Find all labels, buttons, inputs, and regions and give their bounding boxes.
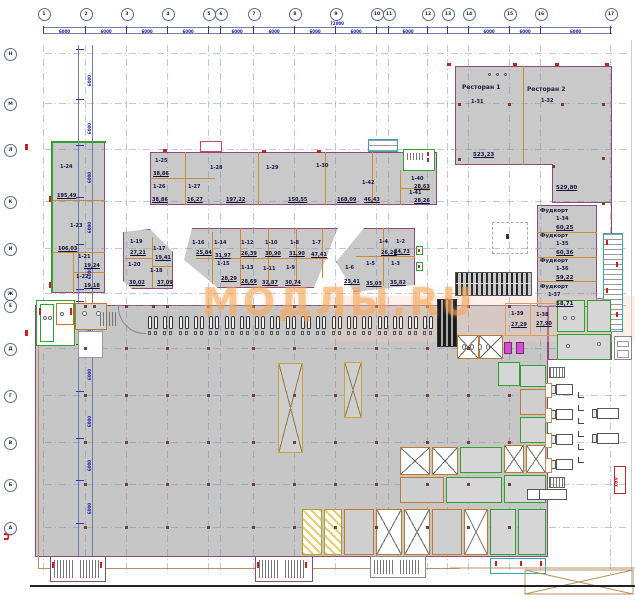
grid-bubble-top: 17 [605,8,618,21]
door-mark [616,312,618,317]
room-name-label: Фудкорт [540,258,568,264]
dim-tick [76,244,84,245]
checkout-base-icon [399,331,402,335]
column-marker [426,483,429,486]
back-of-house-room [302,509,322,555]
room-id-label: 1-16 [192,241,205,246]
dim-tick [76,480,84,481]
grid-bubble-top: 13 [442,8,455,21]
door-mark [418,249,420,252]
equipment-icon [563,316,567,320]
grid-bubble-top: 9 [330,8,343,21]
column-marker [84,347,87,350]
room-area-label: 37,09 [157,281,173,286]
column-marker [375,394,378,397]
grid-bubble-top: 15 [504,8,517,21]
travelator-ramp [278,363,303,453]
room-id-label: 1-17 [153,247,166,252]
grid-bubble-top: 10 [371,8,384,21]
partition [356,256,415,257]
partition [152,237,153,288]
dock-bracket [578,457,584,463]
column-marker [207,441,210,444]
checkout-base-icon [255,331,258,335]
back-of-house-room [432,447,458,475]
dim-total-label: 72000 [330,21,344,26]
column-marker [252,526,255,529]
checkout-base-icon [414,331,417,335]
room-area-label: 25,84 [196,251,212,256]
truck-trl [597,433,619,444]
dim-tick [76,438,84,439]
dim-segment-label: 6000 [87,502,92,513]
column-marker [561,103,564,106]
dim-tick [427,26,428,34]
room-area-label: 59,22 [556,275,573,281]
dim-segment-label: 6000 [403,29,414,34]
grid-line-horizontal [45,149,628,150]
room-name-label: Ресторан 2 [527,86,565,93]
room-id-label: 1-18 [150,269,163,274]
checkout-base-icon [423,331,426,335]
room-id-label: 1-3 [391,262,400,267]
column-marker [508,305,511,308]
column-marker [467,526,470,529]
sheet-frame [30,585,635,587]
dim-segment-label: 6000 [101,29,112,34]
dim-tick [294,26,295,34]
room-area-label: 47,41 [311,253,327,258]
dim-tick [335,26,336,34]
room-id-label: 1-38 [536,313,549,318]
door-mark [605,63,609,66]
grid-bubble-top: 16 [535,8,548,21]
grid-bubble-top: 4 [162,8,175,21]
column-marker [375,526,378,529]
checkout-base-icon [307,331,310,335]
column-marker [458,103,461,106]
room-name-label: Фудкорт [540,208,568,214]
door-mark [495,561,497,566]
checkout-base-icon [240,331,243,335]
room-id-label: 1-19 [130,240,143,245]
column-marker [84,441,87,444]
dim-segment-label: 6000 [351,29,362,34]
door-mark [39,308,41,315]
door-mark [100,562,102,568]
restaurant-inner-wall-h [455,164,553,165]
column-marker [508,441,511,444]
dim-segment-label: 6000 [269,29,280,34]
back-of-house-room [376,509,402,555]
checkout-desk-icon [194,316,198,329]
back-of-house-room [404,509,430,555]
grid-bubble-left: Ж [4,288,17,301]
dim-tick [208,26,209,34]
room-id-label: 1-41 [409,191,422,196]
room-id-label: 1-2 [396,240,405,245]
truck-trl [556,409,573,420]
grid-bubble-left: В [4,437,17,450]
dim-tick [76,523,84,524]
dim-segment-label: 6000 [87,75,92,86]
dim-tick [253,26,254,34]
dim-segment-label: 6000 [142,29,153,34]
column-marker [375,441,378,444]
column-marker [293,394,296,397]
dim-tick [76,197,84,198]
dim-segment-label: 6000 [484,29,495,34]
room-id-label: 1-11 [263,267,276,272]
column-marker [602,103,605,106]
partition [73,252,74,293]
checkout-base-icon [194,331,197,335]
dim-segment-label: 6000 [59,29,70,34]
grid-bubble-left: Л [4,144,17,157]
checkout-base-icon [154,331,157,335]
grid-bubble-top: 11 [383,8,396,21]
room-area-label: 38,86 [153,172,169,177]
cart-icon [82,311,87,316]
dim-tick [447,26,448,34]
checkout-base-icon [231,331,234,335]
room-id-label: 1-22 [76,275,89,280]
dim-tick [43,26,44,34]
room-area-label: 60,25 [556,225,573,231]
partition [523,66,524,165]
column-marker [93,305,96,308]
grid-bubble-left: Е [4,300,17,313]
room-area-label: 28,26 [414,199,430,204]
checkout-lane [162,310,174,337]
checkout-desk-icon [179,316,183,329]
door-mark [163,149,167,152]
checkout-base-icon [163,331,166,335]
room-area-label: 46,43 [364,198,380,203]
checkout-base-icon [286,331,289,335]
room-name-label: Фудкорт [540,284,568,290]
wc-fixture-icon [462,344,466,350]
dim-tick [76,289,84,290]
room-area-label: 168,09 [337,198,356,203]
door-mark [540,561,542,566]
room-id-label: 1-31 [471,100,484,105]
grid-bubble-top: 14 [463,8,476,21]
dim-segment-label: 6000 [570,29,581,34]
door-mark [447,63,451,66]
checkout-base-icon [209,331,212,335]
room-id-label: 1-36 [556,267,569,272]
column-marker [125,526,128,529]
room-id-label: 1-4 [379,240,388,245]
column-marker [426,347,429,350]
grid-bubble-left: Б [4,479,17,492]
room-id-label: 1-15 [217,262,230,267]
room-area-label: 27,21 [130,251,146,256]
column-marker [166,305,169,308]
back-of-house-room [587,300,611,332]
room-area-label: 19,18 [84,284,100,289]
wc-stall [516,342,524,354]
back-of-house-room [504,445,524,473]
room-area-label: 150,55 [288,198,307,203]
back-of-house-room [520,389,546,415]
back-of-house-room [557,334,611,360]
room-id-label: 1-10 [265,241,278,246]
column-marker [84,305,87,308]
door-mark [427,158,429,162]
room-id-label: 1-42 [362,181,375,186]
room-id-label: 1-14 [214,241,227,246]
approval-stamp-text: АВТ [612,477,617,487]
back-of-house-room [518,509,546,555]
column-marker [166,347,169,350]
dim-tick [76,99,84,100]
grid-bubble-top: 2 [80,8,93,21]
column-marker [426,394,429,397]
back-of-house-room [400,477,444,503]
door-mark [49,196,51,202]
column-marker [166,441,169,444]
door-mark [427,152,429,156]
door-mark [606,240,608,245]
column-marker [252,347,255,350]
checkout-base-icon [353,331,356,335]
dock-bracket [578,444,584,450]
room-area-label: 24,73 [394,250,410,255]
door-mark [513,63,517,66]
partition [268,228,269,286]
checkout-base-icon [270,331,273,335]
grid-bubble-top: 8 [289,8,302,21]
dock-bracket [578,431,584,437]
dim-segment-label: 6000 [232,29,243,34]
column-marker [334,483,337,486]
wc-stall [504,342,512,354]
room-id-label: 1-26 [153,185,166,190]
wc-fixture-icon [470,344,474,350]
column-marker [166,526,169,529]
column-marker [207,347,210,350]
checkout-base-icon [301,331,304,335]
grid-bubble-top: 12 [422,8,435,21]
room-area-label: 27,29 [511,323,527,328]
door-mark [257,562,259,568]
room-id-label: 1-27 [188,185,201,190]
checkout-base-icon [225,331,228,335]
column-marker [508,526,511,529]
facade-edge [51,141,53,293]
door-mark [52,562,54,568]
stair-run [54,560,74,578]
room-id-label: 1-8 [290,241,299,246]
back-of-house-room [490,509,516,555]
dock-door [545,458,552,473]
room-area-label: 19,41 [155,256,171,261]
checkout-base-icon [215,331,218,335]
room-id-label: 1-24 [60,165,73,170]
column-marker [125,347,128,350]
dim-tick [167,26,168,34]
dim-segment-label: 6000 [87,172,92,183]
column-marker [508,103,511,106]
partition [150,178,215,179]
column-marker [207,526,210,529]
column-marker [334,347,337,350]
dim-segment-label: 6000 [87,221,92,232]
checkout-base-icon [185,331,188,335]
room-id-label: 1-25 [155,159,168,164]
partition [240,228,241,286]
column-marker [166,483,169,486]
electrical-rack [407,153,425,160]
room-area-label: 106,03 [58,247,77,252]
zone-mark [506,234,509,239]
grid-bubble-left: И [4,243,17,256]
dock-grate [549,477,565,488]
room-area-label: 197,22 [226,198,245,203]
door-mark [25,144,28,150]
dock-door [545,408,552,423]
room-area-label: 529,80 [556,185,577,191]
truck-trailer-line [539,489,540,500]
checkout-base-icon [316,331,319,335]
door-mark [317,150,321,153]
column-marker [426,441,429,444]
grid-bubble-left: М [4,98,17,111]
room-area-label: 195,49 [57,194,76,199]
checkout-base-icon [347,331,350,335]
turnstile-icon [43,316,47,320]
room-id-label: 1-6 [345,266,354,271]
checkout-base-icon [368,331,371,335]
room-id-label: 1-29 [266,166,279,171]
back-of-house-room [464,509,488,555]
truck-trl [597,408,619,419]
dim-tick [376,26,377,34]
grid-line-horizontal [45,348,628,349]
column-marker [508,394,511,397]
checkout-base-icon [384,331,387,335]
back-of-house-room [324,509,342,555]
watermark: МОДЛЫ.RU [202,280,475,324]
door-mark [606,288,608,293]
checkout-base-icon [148,331,151,335]
back-of-house-room [479,335,503,359]
grid-bubble-left: Д [4,343,17,356]
dim-segment-label: 6000 [87,460,92,471]
stair-run [259,560,279,578]
dashed-zone [492,222,528,254]
grid-bubble-left: Г [4,390,17,403]
dim-segment-label: 6000 [183,29,194,34]
back-of-house-room [446,477,502,503]
dim-tick [76,145,84,146]
checkout-base-icon [276,331,279,335]
wc-fixture-icon [486,344,490,350]
column-marker [467,483,470,486]
wc-fixture-icon [478,344,482,350]
partition [325,152,326,205]
restaurant-inner-wall-v [552,164,553,203]
dock-door [545,433,552,448]
stair-run [285,560,305,578]
room-id-label: 1-5 [366,262,375,267]
column-marker [152,305,155,308]
column-marker [467,441,470,444]
dock-grate [549,367,565,378]
room-id-label: 1-7 [312,241,321,246]
door-mark [305,562,307,568]
travelator-ramp [344,362,362,418]
checkout-base-icon [408,331,411,335]
column-marker [252,441,255,444]
room-id-label: 1-9 [286,266,295,271]
room-area-label: 58,71 [556,301,573,307]
column-marker [84,394,87,397]
dim-tick [76,391,84,392]
room-area-label: 523,23 [473,152,494,158]
vestibule-inner [40,304,54,342]
dim-tick [610,26,611,34]
room-id-label: 1-23 [70,224,83,229]
truck-trl [556,384,573,395]
truck-icon [592,433,620,444]
checkout-base-icon [169,331,172,335]
column-marker [125,483,128,486]
checkout-base-icon [362,331,365,335]
stair-run [400,560,420,574]
column-marker [334,441,337,444]
stair-run [374,560,394,574]
dim-segment-label: 6000 [520,29,531,34]
grid-bubble-top: 7 [248,8,261,21]
column-marker [458,158,461,161]
door-mark [262,150,266,153]
room-id-label: 1-13 [241,266,254,271]
checkout-base-icon [429,331,432,335]
cart-corral [109,312,116,326]
room-id-label: 1-12 [241,241,254,246]
back-of-house-room [400,447,430,475]
room-id-label: 1-39 [511,312,524,317]
checkout-base-icon [179,331,182,335]
room-area-label: 38,86 [152,198,168,203]
room-id-label: 1-32 [541,99,554,104]
grid-bubble-top: 6 [215,8,228,21]
roof-stair [368,139,398,152]
stair-void [78,331,103,358]
column-marker [375,483,378,486]
checkout-base-icon [200,331,203,335]
equipment-icon [597,342,601,346]
dim-tick [126,26,127,34]
column-marker [375,347,378,350]
dock-office-desk [617,350,629,358]
grid-bubble-top: 3 [121,8,134,21]
column-marker [125,394,128,397]
door-mark [520,561,522,566]
truck-icon [551,384,573,395]
checkout-base-icon [246,331,249,335]
dim-segment-label: 6000 [310,29,321,34]
dim-tick [509,26,510,34]
room-id-label: 1-35 [556,242,569,247]
checkout-desk-icon [169,316,173,329]
truck-icon [551,409,573,420]
back-of-house-room [526,445,546,473]
roof-box [200,141,222,152]
